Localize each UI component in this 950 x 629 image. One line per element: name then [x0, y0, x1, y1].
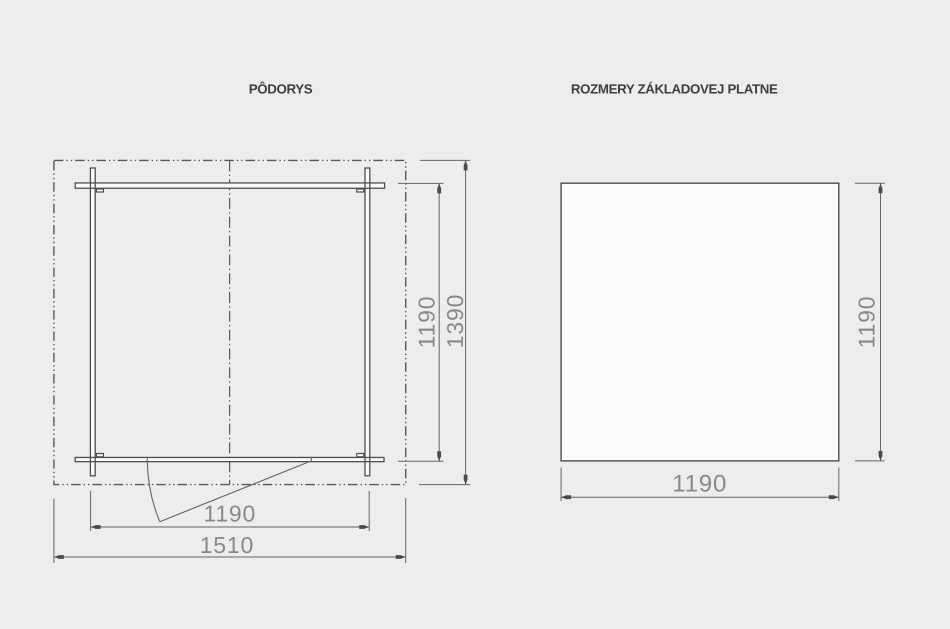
svg-text:1190: 1190 — [672, 471, 727, 498]
svg-text:1510: 1510 — [200, 532, 254, 558]
svg-text:1390: 1390 — [442, 294, 468, 348]
svg-text:PÔDORYS: PÔDORYS — [249, 82, 313, 97]
svg-text:1190: 1190 — [203, 500, 256, 526]
svg-text:ROZMERY ZÁKLADOVEJ PLATNE: ROZMERY ZÁKLADOVEJ PLATNE — [571, 82, 778, 97]
svg-text:1190: 1190 — [853, 296, 879, 349]
svg-text:1190: 1190 — [413, 296, 439, 349]
